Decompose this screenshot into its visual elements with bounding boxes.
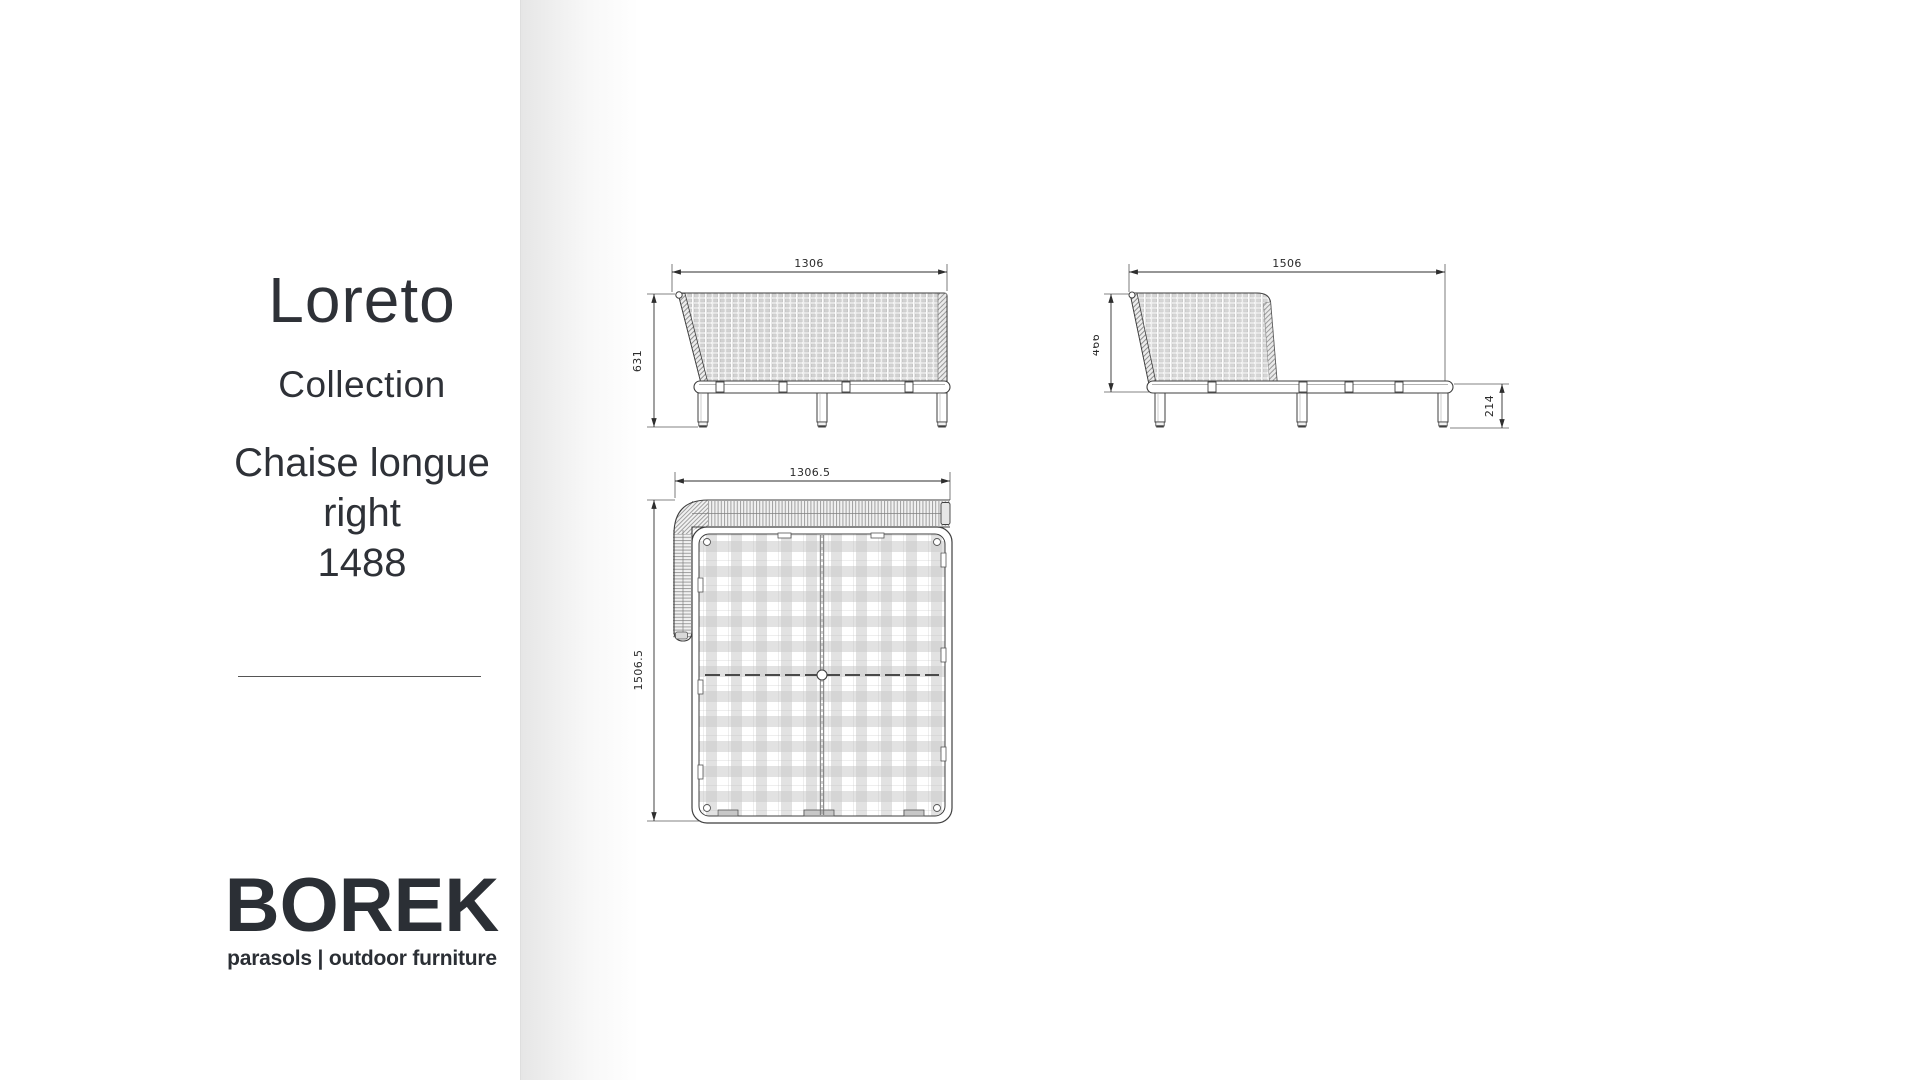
page-fold-shadow: [520, 0, 639, 1080]
collection-label: Collection: [212, 366, 512, 403]
brand-tagline: parasols | outdoor furniture: [212, 947, 512, 971]
side-back-height-label: 466: [1093, 334, 1102, 356]
side-view-leg-height-dimension: 214: [1450, 384, 1509, 428]
front-view-width-dimension: 1306: [672, 257, 947, 292]
side-view-backrest: [1129, 292, 1277, 389]
info-panel: Loreto Collection Chaise longue right 14…: [0, 0, 520, 1080]
side-view-seat: [1147, 381, 1453, 393]
divider-rule: [238, 676, 481, 677]
product-code: 1488: [162, 538, 562, 588]
top-depth-label: 1506.5: [632, 650, 645, 691]
product-name: Chaise longue right 1488: [162, 438, 562, 588]
side-view-legs: [1155, 393, 1448, 428]
side-width-label: 1506: [1272, 257, 1302, 270]
front-width-label: 1306: [794, 257, 824, 270]
product-name-line1: Chaise longue: [162, 438, 562, 488]
datasheet-page: { "panel": { "title": "Loreto", "subtitl…: [0, 0, 1920, 1080]
front-view-legs: [698, 393, 947, 428]
front-view-body: [676, 292, 950, 393]
front-height-label: 631: [631, 350, 644, 372]
parasol-hole: [817, 670, 827, 680]
top-view-drawing: 1306.5 1506.5: [628, 460, 978, 840]
brand-logo-text: BOREK: [212, 868, 512, 944]
brand-logo: BOREK parasols | outdoor furniture: [212, 868, 512, 971]
front-view-drawing: 1306 631: [628, 248, 968, 443]
side-view-drawing: 1506 466 214: [1093, 248, 1523, 443]
collection-name: Loreto: [212, 268, 512, 332]
side-leg-height-label: 214: [1483, 395, 1496, 417]
top-view-seat: [692, 527, 952, 823]
top-view-width-dimension: 1306.5: [675, 466, 950, 500]
top-width-label: 1306.5: [790, 466, 831, 479]
product-name-line2: right: [162, 488, 562, 538]
